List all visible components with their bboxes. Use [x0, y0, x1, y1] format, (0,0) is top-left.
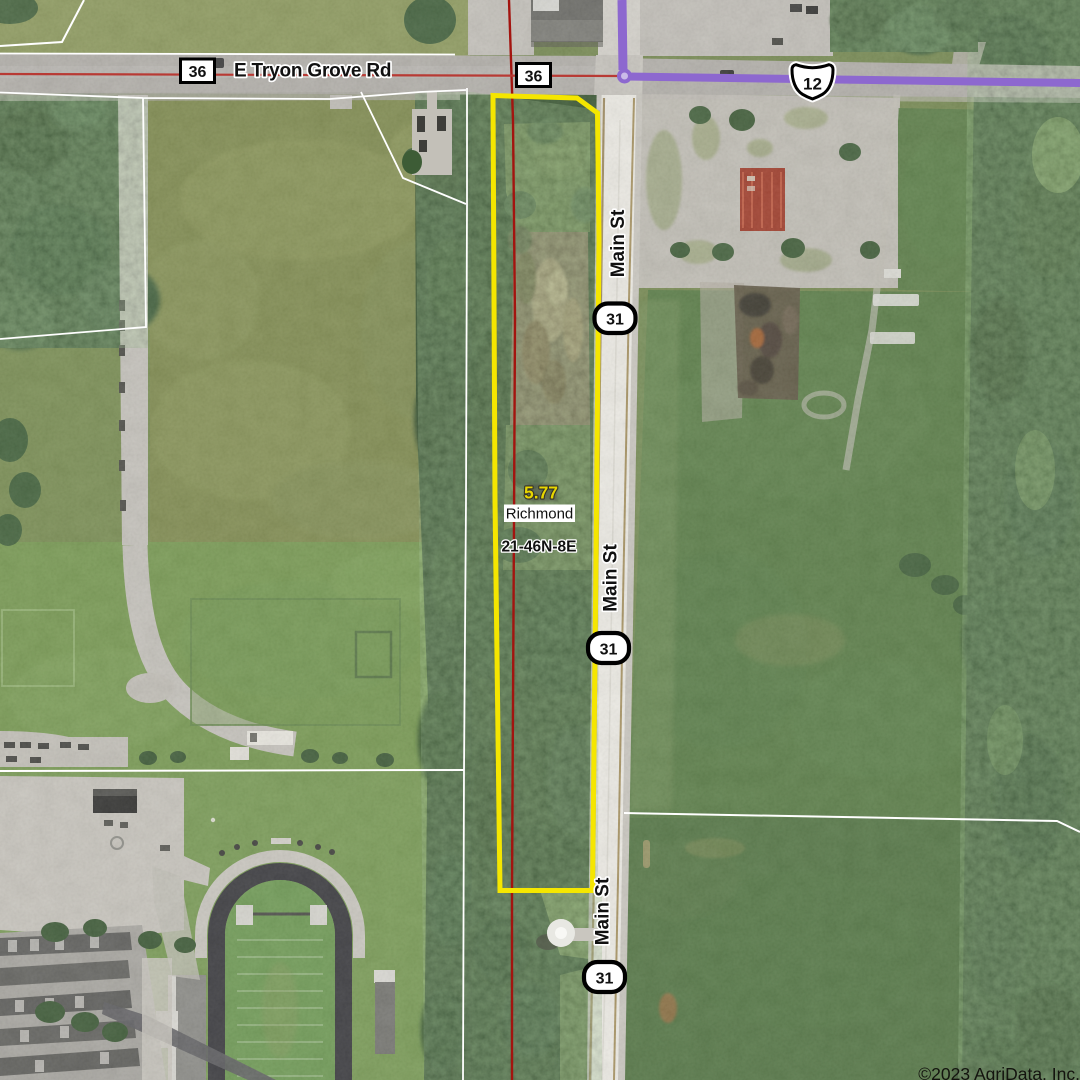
svg-text:©2023 AgriData, Inc.: ©2023 AgriData, Inc.	[918, 1064, 1080, 1080]
svg-text:31: 31	[596, 971, 614, 988]
svg-text:12: 12	[803, 75, 822, 94]
svg-text:Richmond: Richmond	[506, 506, 574, 523]
svg-text:36: 36	[189, 64, 207, 81]
svg-text:31: 31	[600, 642, 618, 659]
svg-text:31: 31	[606, 312, 624, 329]
svg-text:21-46N-8E: 21-46N-8E	[502, 539, 577, 556]
svg-text:5.77: 5.77	[524, 483, 558, 503]
svg-text:Main St: Main St	[593, 877, 614, 945]
svg-text:Main St: Main St	[601, 544, 622, 612]
svg-text:Main St: Main St	[608, 209, 629, 277]
svg-text:36: 36	[525, 69, 543, 86]
svg-text:E Tryon Grove Rd: E Tryon Grove Rd	[234, 61, 391, 82]
